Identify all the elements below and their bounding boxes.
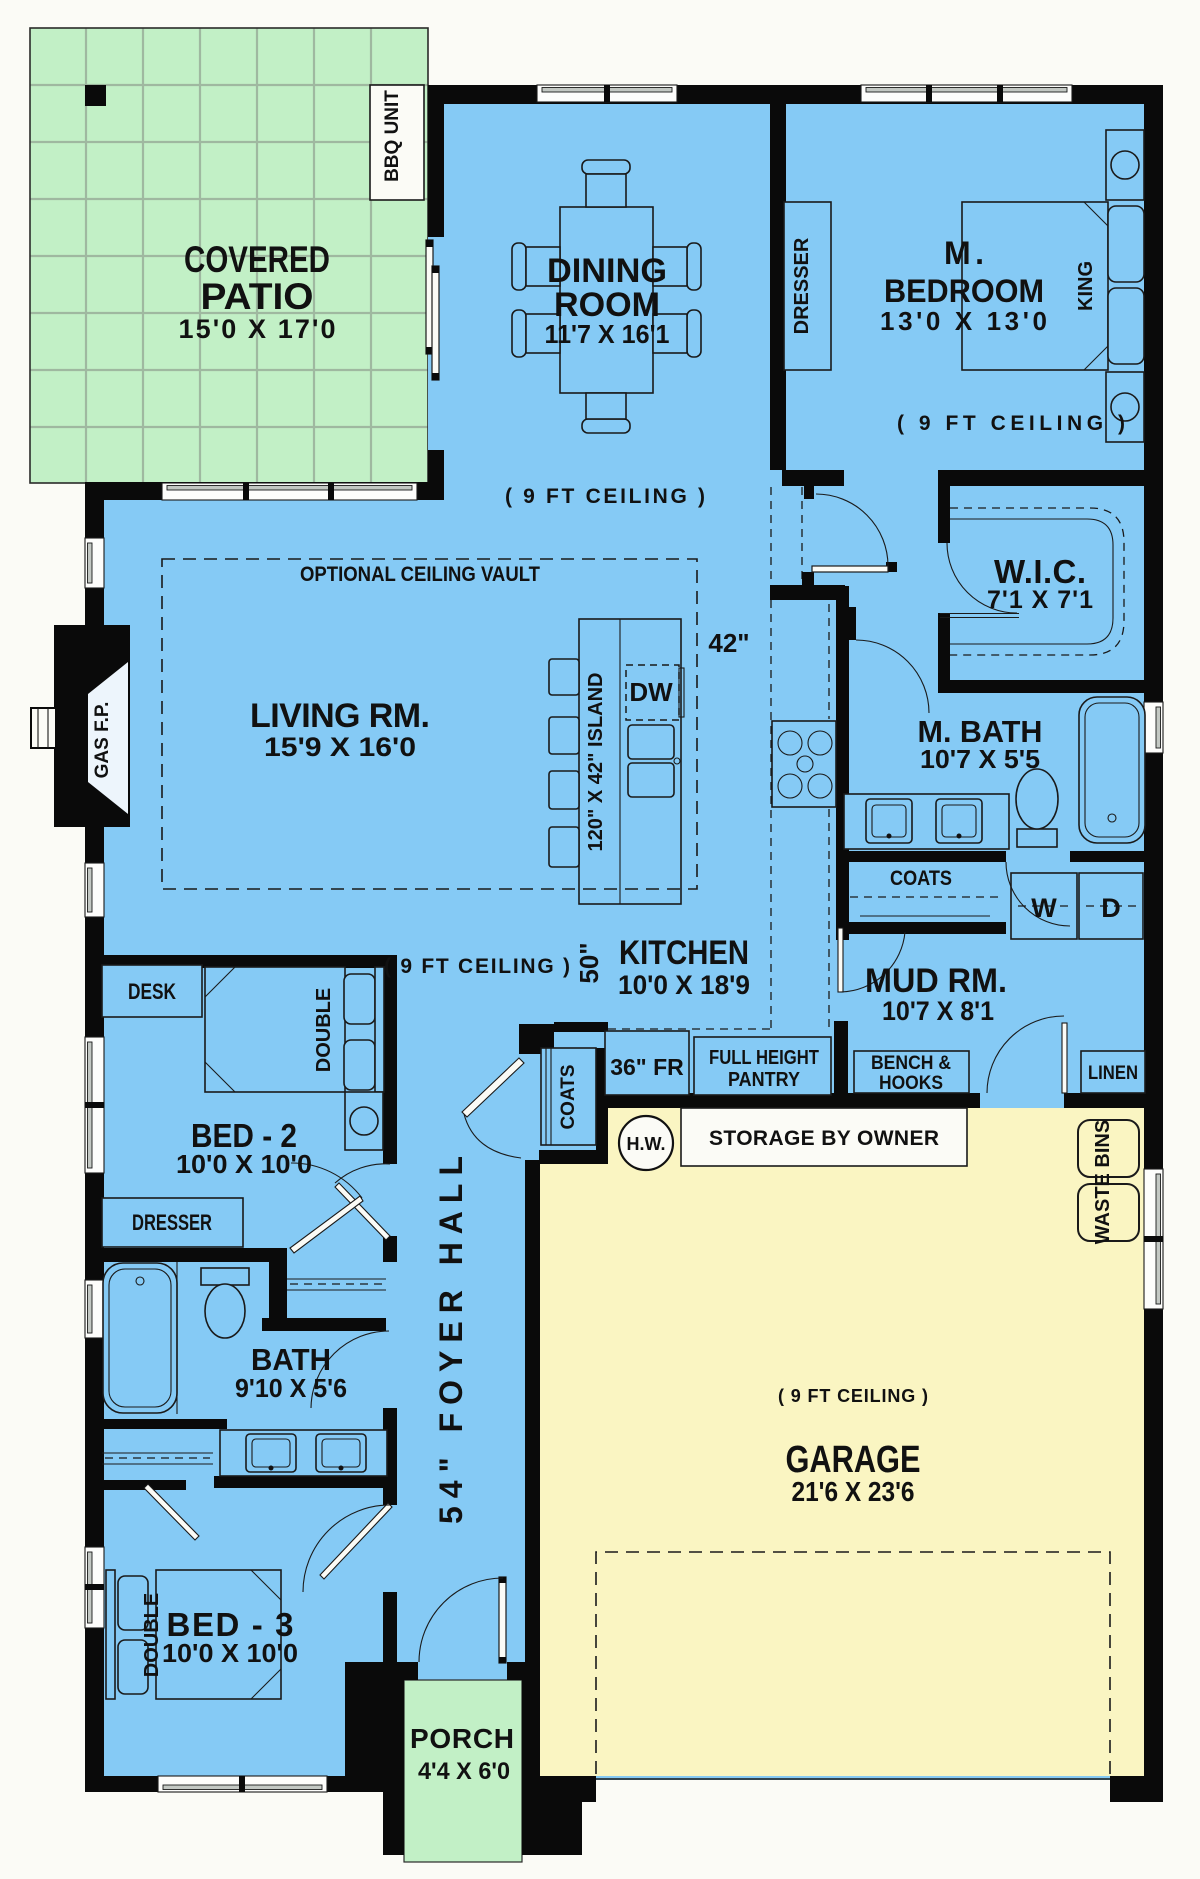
- svg-text:COVERED: COVERED: [184, 239, 330, 280]
- svg-text:( 9 FT CEILING ): ( 9 FT CEILING ): [384, 955, 570, 978]
- svg-text:DOUBLE: DOUBLE: [313, 988, 335, 1072]
- svg-text:PORCH: PORCH: [410, 1723, 514, 1754]
- svg-text:BEDROOM: BEDROOM: [884, 273, 1044, 309]
- svg-text:COATS: COATS: [558, 1064, 579, 1129]
- svg-text:HOOKS: HOOKS: [879, 1073, 943, 1094]
- svg-text:W.I.C.: W.I.C.: [994, 553, 1086, 590]
- svg-text:54" FOYER HALL: 54" FOYER HALL: [433, 1156, 469, 1524]
- svg-text:COATS: COATS: [890, 867, 952, 890]
- svg-text:BATH: BATH: [251, 1342, 331, 1377]
- svg-text:W: W: [1031, 893, 1057, 923]
- svg-text:DRESSER: DRESSER: [132, 1210, 212, 1235]
- svg-text:DRESSER: DRESSER: [791, 237, 813, 334]
- svg-text:11'7 X 16'1: 11'7 X 16'1: [545, 319, 670, 349]
- svg-text:DINING: DINING: [547, 252, 667, 290]
- svg-text:DW: DW: [629, 677, 673, 707]
- svg-text:WASTE BINS: WASTE BINS: [1092, 1120, 1114, 1244]
- svg-text:LINEN: LINEN: [1088, 1063, 1138, 1084]
- svg-text:DOUBLE: DOUBLE: [141, 1593, 163, 1677]
- svg-text:OPTIONAL CEILING VAULT: OPTIONAL CEILING VAULT: [300, 563, 540, 586]
- svg-text:BBQ UNIT: BBQ UNIT: [382, 90, 403, 182]
- svg-text:MUD RM.: MUD RM.: [865, 962, 1007, 1000]
- svg-text:50": 50": [574, 942, 604, 983]
- svg-text:4'4 X 6'0: 4'4 X 6'0: [418, 1758, 510, 1785]
- svg-text:M.: M.: [944, 235, 984, 271]
- svg-text:D: D: [1101, 893, 1121, 923]
- svg-text:KING: KING: [1075, 261, 1097, 311]
- svg-text:10'0 X 10'0: 10'0 X 10'0: [162, 1638, 298, 1668]
- svg-text:10'0 X 10'0: 10'0 X 10'0: [176, 1149, 312, 1179]
- svg-text:9'10 X 5'6: 9'10 X 5'6: [235, 1373, 347, 1403]
- svg-text:PATIO: PATIO: [201, 276, 314, 317]
- svg-text:H.W.: H.W.: [627, 1134, 666, 1154]
- svg-text:10'7 X 8'1: 10'7 X 8'1: [882, 996, 994, 1026]
- svg-text:15'0 X 17'0: 15'0 X 17'0: [179, 314, 336, 344]
- svg-text:21'6 X 23'6: 21'6 X 23'6: [792, 1476, 915, 1507]
- svg-text:FULL HEIGHT: FULL HEIGHT: [709, 1047, 819, 1069]
- svg-text:DESK: DESK: [128, 979, 176, 1004]
- svg-text:10'7 X 5'5: 10'7 X 5'5: [920, 744, 1040, 774]
- svg-text:15'9 X 16'0: 15'9 X 16'0: [264, 732, 416, 762]
- svg-text:10'0 X 18'9: 10'0 X 18'9: [618, 970, 750, 1000]
- svg-text:PANTRY: PANTRY: [728, 1069, 801, 1091]
- svg-text:13'0 X 13'0: 13'0 X 13'0: [880, 306, 1048, 336]
- svg-text:36" FR: 36" FR: [610, 1054, 684, 1080]
- svg-text:120" X 42" ISLAND: 120" X 42" ISLAND: [585, 672, 607, 851]
- svg-text:GAS F.P.: GAS F.P.: [92, 702, 113, 779]
- svg-text:LIVING RM.: LIVING RM.: [250, 697, 430, 735]
- svg-text:GARAGE: GARAGE: [786, 1439, 921, 1481]
- svg-text:42": 42": [708, 628, 749, 658]
- svg-text:7'1 X 7'1: 7'1 X 7'1: [987, 586, 1093, 614]
- svg-text:BENCH &: BENCH &: [871, 1053, 951, 1074]
- svg-text:KITCHEN: KITCHEN: [619, 934, 749, 972]
- svg-text:STORAGE BY OWNER: STORAGE BY OWNER: [709, 1127, 939, 1150]
- svg-text:( 9 FT CEILING ): ( 9 FT CEILING ): [778, 1386, 928, 1406]
